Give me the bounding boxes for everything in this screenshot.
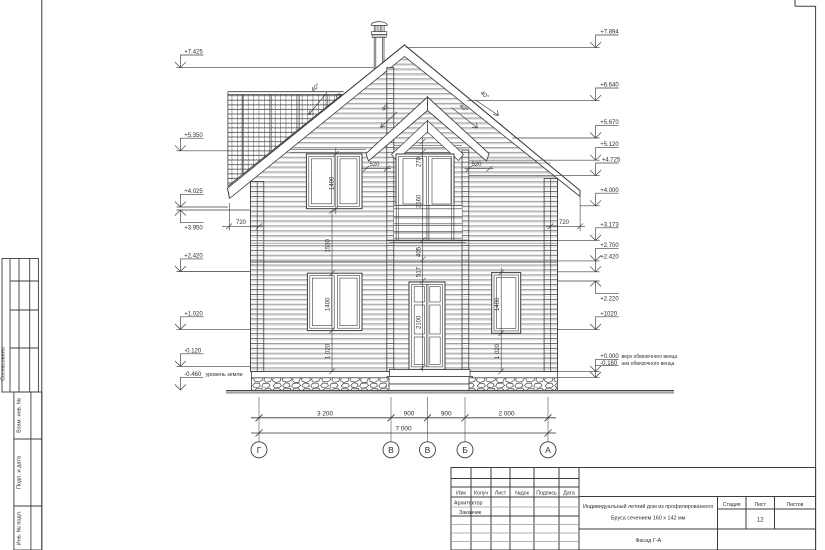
svg-text:Изм: Изм xyxy=(456,490,466,496)
svg-text:2160: 2160 xyxy=(416,194,422,208)
svg-text:1400: 1400 xyxy=(495,297,501,311)
svg-text:Инв. № подл.: Инв. № подл. xyxy=(17,510,23,545)
svg-text:А: А xyxy=(545,445,551,455)
svg-text:720: 720 xyxy=(559,220,570,226)
svg-text:+7.894: +7.894 xyxy=(600,30,619,36)
svg-text:Индивидуальный летний дом из п: Индивидуальный летний дом из профилирова… xyxy=(583,503,713,510)
svg-text:№док: №док xyxy=(515,490,529,496)
svg-text:3 200: 3 200 xyxy=(317,410,333,417)
svg-text:12: 12 xyxy=(757,517,764,524)
svg-text:-0.160: -0.160 xyxy=(600,361,618,367)
svg-text:В: В xyxy=(388,445,394,455)
svg-text:+2.420: +2.420 xyxy=(184,254,203,260)
svg-text:1530: 1530 xyxy=(326,238,332,252)
svg-text:низ обвязочного венца: низ обвязочного венца xyxy=(622,361,675,367)
svg-text:+2.420: +2.420 xyxy=(600,254,619,260)
svg-text:+7.425: +7.425 xyxy=(184,50,203,56)
svg-text:+3.173: +3.173 xyxy=(600,222,619,228)
svg-text:Бруса сечением 160 х 142 мм: Бруса сечением 160 х 142 мм xyxy=(611,516,686,522)
svg-text:+1.020: +1.020 xyxy=(184,311,203,317)
svg-text:Фасад Г-А: Фасад Г-А xyxy=(635,538,661,544)
svg-text:+4.025: +4.025 xyxy=(184,189,203,195)
svg-text:Взам. инв. №: Взам. инв. № xyxy=(17,398,23,433)
svg-text:Подп. и дата: Подп. и дата xyxy=(17,455,23,489)
svg-text:+6.640: +6.640 xyxy=(600,83,619,89)
svg-text:520: 520 xyxy=(472,162,483,168)
svg-text:уровень земли: уровень земли xyxy=(206,372,243,378)
svg-text:+2.220: +2.220 xyxy=(600,297,619,303)
svg-text:Лист: Лист xyxy=(495,490,507,496)
svg-text:1 020: 1 020 xyxy=(495,343,501,359)
svg-text:+0.000: +0.000 xyxy=(600,354,619,360)
svg-text:Лист: Лист xyxy=(755,502,767,508)
svg-text:1400: 1400 xyxy=(329,176,335,190)
svg-text:405: 405 xyxy=(416,246,422,257)
svg-text:517: 517 xyxy=(416,266,422,277)
svg-text:720: 720 xyxy=(236,220,247,226)
svg-text:Подпись: Подпись xyxy=(536,490,557,496)
svg-text:+5.670: +5.670 xyxy=(600,120,619,126)
svg-text:Б: Б xyxy=(462,445,468,455)
svg-text:900: 900 xyxy=(441,410,452,417)
svg-text:Колуч: Колуч xyxy=(474,490,488,496)
svg-text:Согласовано: Согласовано xyxy=(1,347,7,381)
svg-text:-0.460: -0.460 xyxy=(184,372,202,378)
svg-text:+5.350: +5.350 xyxy=(184,133,203,139)
svg-text:900: 900 xyxy=(404,410,415,417)
svg-text:+3.950: +3.950 xyxy=(184,226,203,232)
svg-text:7 000: 7 000 xyxy=(396,426,412,433)
svg-text:Архитектор: Архитектор xyxy=(454,501,482,507)
svg-text:1 020: 1 020 xyxy=(326,343,332,359)
svg-text:+1020: +1020 xyxy=(600,311,618,317)
svg-text:520: 520 xyxy=(370,162,381,168)
svg-text:+2.700: +2.700 xyxy=(600,243,619,249)
svg-text:+4.725: +4.725 xyxy=(602,158,621,164)
svg-text:-0.120: -0.120 xyxy=(184,348,202,354)
svg-text:270: 270 xyxy=(416,156,422,167)
svg-text:+4.000: +4.000 xyxy=(600,188,619,194)
svg-text:Дата: Дата xyxy=(563,490,575,496)
svg-text:В: В xyxy=(425,445,431,455)
svg-text:верх обвязочного венца: верх обвязочного венца xyxy=(622,354,678,360)
svg-text:Г: Г xyxy=(257,445,262,455)
svg-text:1400: 1400 xyxy=(326,297,332,311)
svg-text:+5.120: +5.120 xyxy=(600,142,619,148)
svg-text:Стадия: Стадия xyxy=(723,502,741,508)
svg-text:2100: 2100 xyxy=(416,315,422,329)
svg-text:2 000: 2 000 xyxy=(499,410,515,417)
svg-text:Листов: Листов xyxy=(787,502,804,508)
svg-text:Заказчик: Заказчик xyxy=(459,510,482,516)
